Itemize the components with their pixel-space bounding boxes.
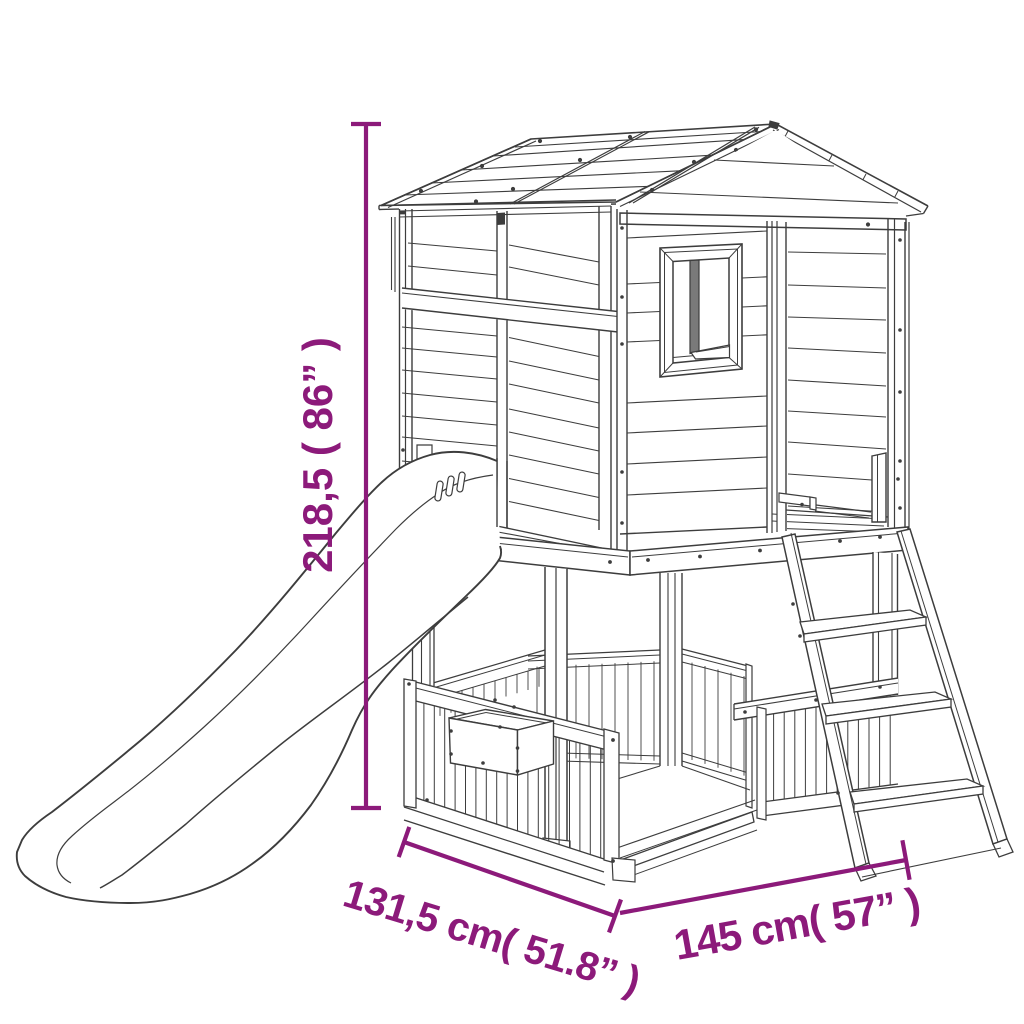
svg-text:218,5 ( 86” ): 218,5 ( 86” ): [294, 337, 341, 573]
